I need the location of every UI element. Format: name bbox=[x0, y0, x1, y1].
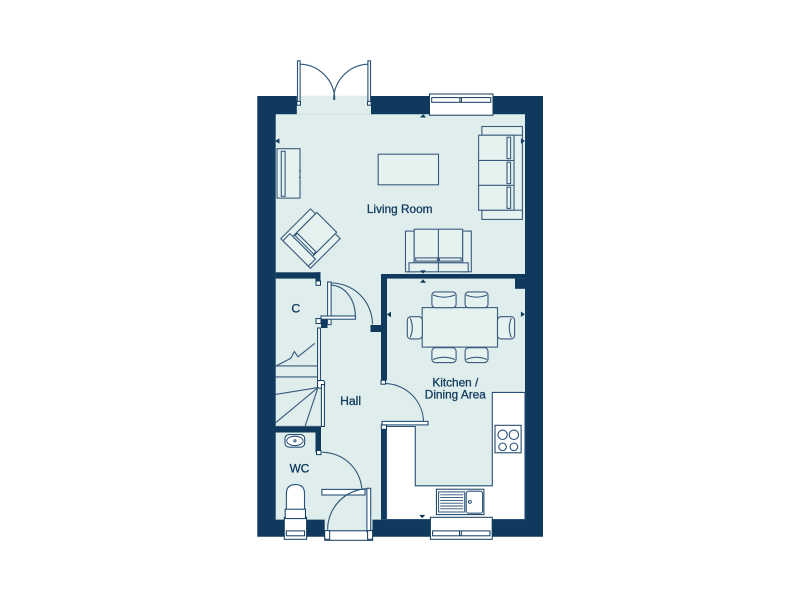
svg-text:WC: WC bbox=[290, 461, 310, 475]
svg-text:Hall: Hall bbox=[340, 394, 361, 408]
svg-text:C: C bbox=[291, 302, 300, 316]
svg-text:Dining Area: Dining Area bbox=[425, 388, 486, 402]
svg-text:Living Room: Living Room bbox=[367, 202, 433, 216]
